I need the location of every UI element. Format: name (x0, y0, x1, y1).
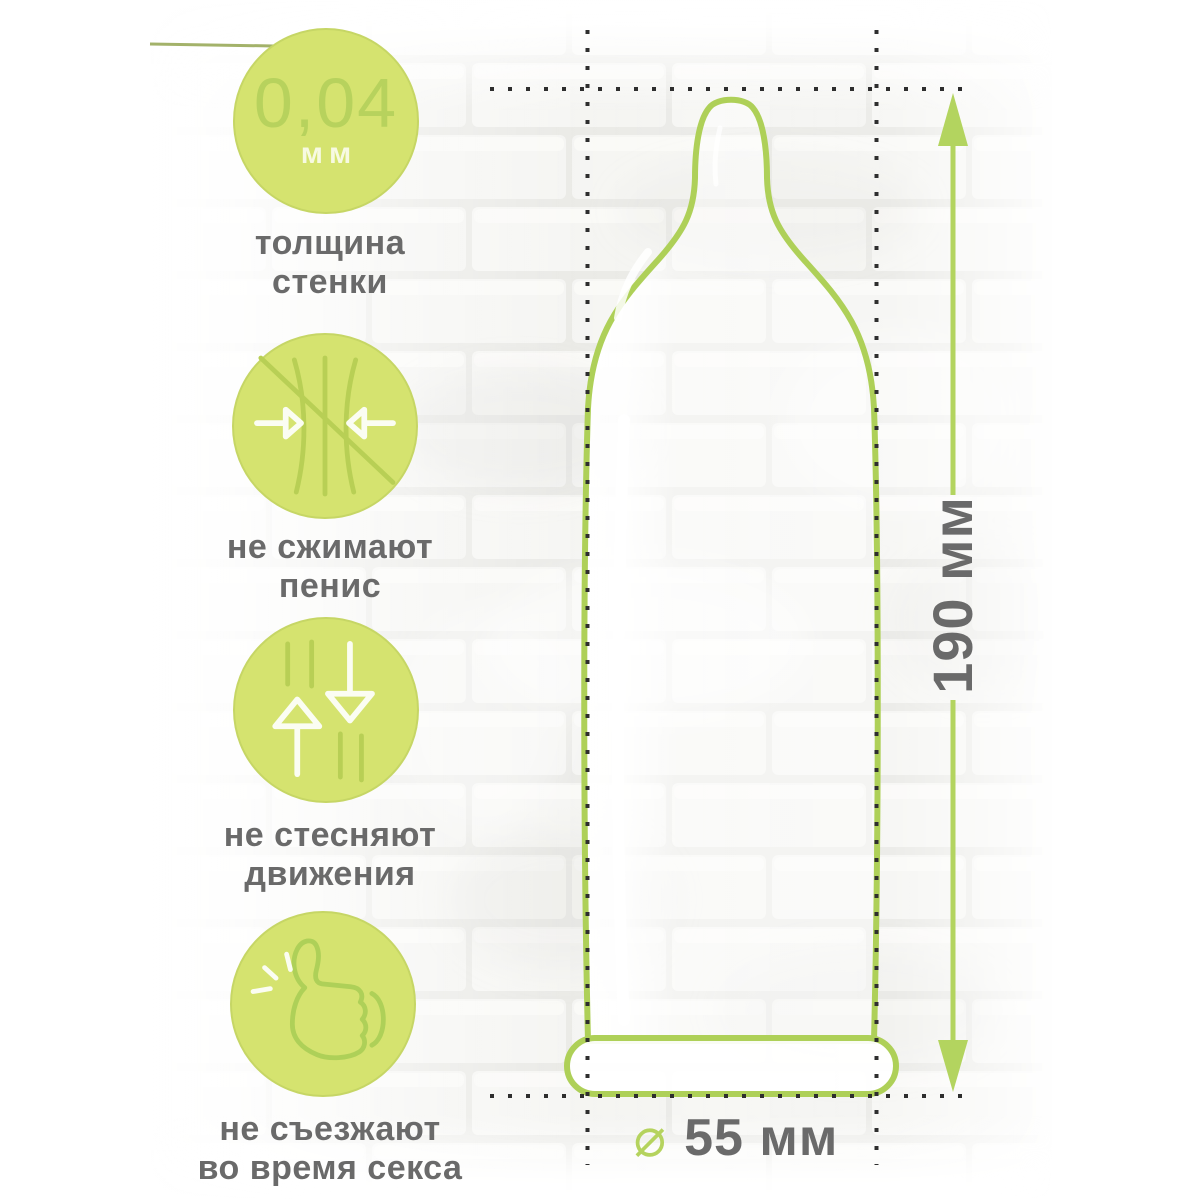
no-squeeze-icon (234, 335, 416, 517)
feature-badge-no-squeeze (232, 333, 418, 519)
free-movement-icon (235, 619, 417, 801)
connector-line (150, 44, 274, 46)
feature-badge-no-slip (230, 911, 416, 1097)
condom-body (584, 100, 878, 1041)
length-measurement-label: 190 мм (925, 485, 981, 705)
arrowhead-up (938, 93, 968, 146)
thickness-unit: мм (295, 137, 357, 171)
diameter-measurement-label: ⌀ 55 мм (576, 1108, 896, 1168)
thumbs-up-icon (232, 913, 414, 1095)
diameter-icon: ⌀ (634, 1108, 667, 1168)
infographic-canvas: 0,04 мм толщина стенки не сжимают пенис (0, 0, 1200, 1200)
feature-label-no-squeeze: не сжимают пенис (110, 528, 550, 606)
diameter-value: 55 мм (684, 1108, 838, 1168)
condom-outline (567, 100, 896, 1094)
feature-label-free-movement: не стесняют движения (110, 816, 550, 894)
body-highlight-long (618, 420, 624, 1020)
feature-label-thickness: толщина стенки (110, 224, 550, 302)
feature-badge-free-movement (233, 617, 419, 803)
thickness-value: 0,04 (254, 71, 398, 135)
arrowhead-down (938, 1040, 968, 1092)
feature-badge-thickness: 0,04 мм (233, 28, 419, 214)
condom-rim (567, 1038, 896, 1094)
feature-label-no-slip: не съезжают во время секса (110, 1110, 550, 1188)
